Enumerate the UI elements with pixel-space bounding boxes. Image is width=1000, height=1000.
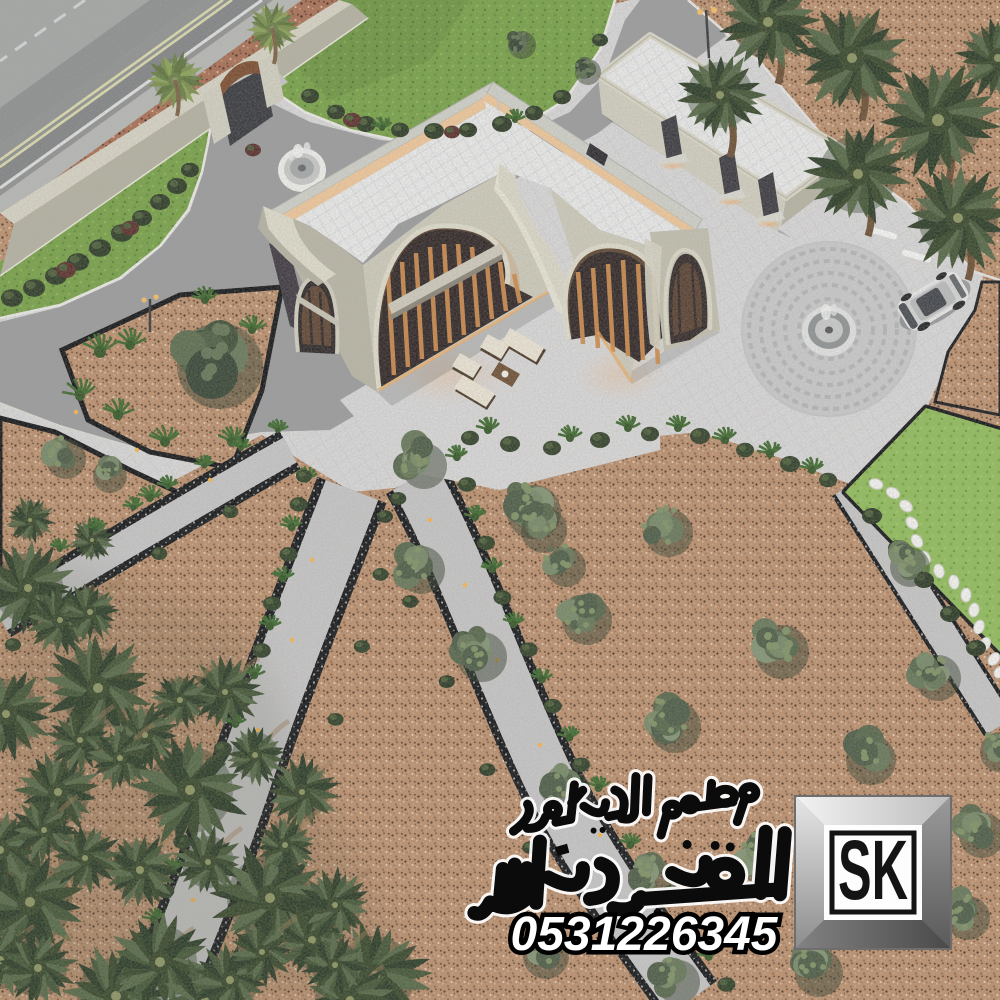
- svg-text:SK: SK: [838, 823, 908, 918]
- svg-text:0531226345: 0531226345: [511, 908, 779, 961]
